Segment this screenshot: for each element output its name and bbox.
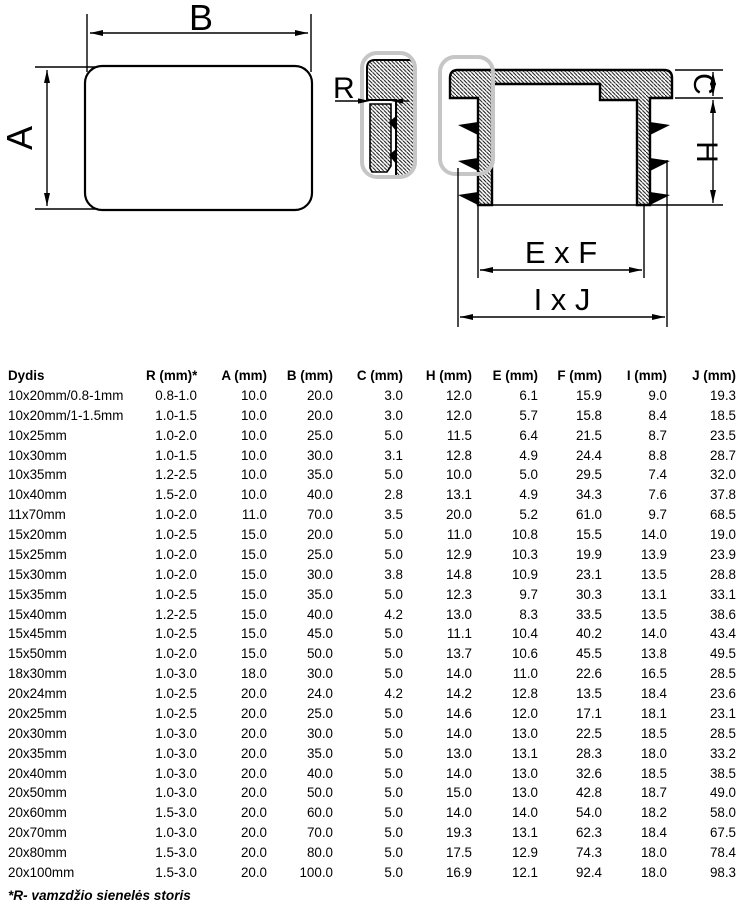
- value-cell: 15.0: [197, 545, 267, 565]
- value-cell: 4.2: [333, 605, 403, 625]
- value-cell: 1.0-2.5: [146, 704, 197, 724]
- value-cell: 20.0: [267, 406, 333, 426]
- value-cell: 4.9: [472, 485, 538, 505]
- fin: [458, 158, 478, 171]
- value-cell: 98.3: [667, 863, 736, 883]
- value-cell: 18.0: [197, 664, 267, 684]
- value-cell: 23.1: [667, 704, 736, 724]
- value-cell: 78.4: [667, 843, 736, 863]
- value-cell: 9.7: [602, 505, 667, 525]
- dim-label-ExF: E x F: [525, 235, 597, 270]
- value-cell: 9.7: [472, 585, 538, 605]
- value-cell: 49.0: [667, 783, 736, 803]
- size-cell: 11x70mm: [8, 505, 146, 525]
- value-cell: 28.7: [667, 446, 736, 466]
- value-cell: 13.9: [602, 545, 667, 565]
- value-cell: 1.0-3.0: [146, 783, 197, 803]
- value-cell: 14.0: [403, 803, 472, 823]
- detail-tube-wall: [370, 104, 391, 172]
- table-row: 18x30mm1.0-3.018.030.05.014.011.022.616.…: [8, 664, 736, 684]
- value-cell: 70.0: [267, 505, 333, 525]
- value-cell: 19.3: [667, 386, 736, 406]
- value-cell: 10.0: [197, 485, 267, 505]
- column-header: R (mm)*: [146, 366, 197, 386]
- value-cell: 18.5: [602, 764, 667, 784]
- value-cell: 15.8: [538, 406, 602, 426]
- value-cell: 5.0: [333, 525, 403, 545]
- technical-drawing: B A R: [0, 0, 741, 360]
- value-cell: 35.0: [267, 744, 333, 764]
- table-row: 15x20mm1.0-2.515.020.05.011.010.815.514.…: [8, 525, 736, 545]
- value-cell: 18.4: [602, 823, 667, 843]
- value-cell: 18.4: [602, 684, 667, 704]
- dim-label-A: A: [0, 126, 40, 150]
- value-cell: 50.0: [267, 783, 333, 803]
- section-cap-body: [450, 70, 672, 205]
- value-cell: 18.7: [602, 783, 667, 803]
- value-cell: 32.6: [538, 764, 602, 784]
- value-cell: 14.0: [403, 664, 472, 684]
- value-cell: 61.0: [538, 505, 602, 525]
- value-cell: 20.0: [267, 386, 333, 406]
- value-cell: 21.5: [538, 426, 602, 446]
- value-cell: 5.0: [333, 863, 403, 883]
- size-cell: 15x25mm: [8, 545, 146, 565]
- column-header: F (mm): [538, 366, 602, 386]
- value-cell: 8.3: [472, 605, 538, 625]
- size-cell: 18x30mm: [8, 664, 146, 684]
- column-header: J (mm): [667, 366, 736, 386]
- value-cell: 1.5-2.0: [146, 485, 197, 505]
- table-row: 10x25mm1.0-2.010.025.05.011.56.421.58.72…: [8, 426, 736, 446]
- value-cell: 19.3: [403, 823, 472, 843]
- value-cell: 13.1: [472, 823, 538, 843]
- column-header: I (mm): [602, 366, 667, 386]
- value-cell: 1.0-2.5: [146, 684, 197, 704]
- value-cell: 13.1: [602, 585, 667, 605]
- value-cell: 28.3: [538, 744, 602, 764]
- value-cell: 1.0-2.5: [146, 525, 197, 545]
- value-cell: 11.0: [472, 664, 538, 684]
- value-cell: 34.3: [538, 485, 602, 505]
- value-cell: 11.0: [197, 505, 267, 525]
- value-cell: 17.5: [403, 843, 472, 863]
- value-cell: 11.5: [403, 426, 472, 446]
- value-cell: 12.0: [403, 386, 472, 406]
- value-cell: 45.0: [267, 624, 333, 644]
- value-cell: 38.5: [667, 764, 736, 784]
- value-cell: 5.0: [333, 426, 403, 446]
- value-cell: 49.5: [667, 644, 736, 664]
- size-cell: 20x30mm: [8, 724, 146, 744]
- table-row: 20x100mm1.5-3.020.0100.05.016.912.192.41…: [8, 863, 736, 883]
- value-cell: 14.8: [403, 565, 472, 585]
- page: { "drawing": { "labels": { "width": "B",…: [0, 0, 741, 917]
- size-cell: 20x60mm: [8, 803, 146, 823]
- value-cell: 67.5: [667, 823, 736, 843]
- value-cell: 14.0: [602, 624, 667, 644]
- value-cell: 35.0: [267, 585, 333, 605]
- value-cell: 10.8: [472, 525, 538, 545]
- value-cell: 8.7: [602, 426, 667, 446]
- value-cell: 1.0-2.0: [146, 426, 197, 446]
- value-cell: 14.0: [403, 764, 472, 784]
- value-cell: 10.3: [472, 545, 538, 565]
- value-cell: 13.0: [403, 744, 472, 764]
- value-cell: 5.0: [333, 744, 403, 764]
- value-cell: 5.0: [333, 585, 403, 605]
- detail-view: R: [333, 53, 430, 180]
- value-cell: 37.8: [667, 485, 736, 505]
- table-row: 11x70mm1.0-2.011.070.03.520.05.261.09.76…: [8, 505, 736, 525]
- column-header: H (mm): [403, 366, 472, 386]
- fin: [458, 192, 478, 205]
- column-header: B (mm): [267, 366, 333, 386]
- value-cell: 20.0: [197, 684, 267, 704]
- value-cell: 17.1: [538, 704, 602, 724]
- size-cell: 20x70mm: [8, 823, 146, 843]
- value-cell: 40.0: [267, 605, 333, 625]
- value-cell: 20.0: [197, 843, 267, 863]
- value-cell: 6.4: [472, 426, 538, 446]
- value-cell: 13.1: [472, 744, 538, 764]
- value-cell: 38.6: [667, 605, 736, 625]
- table-row: 20x50mm1.0-3.020.050.05.015.013.042.818.…: [8, 783, 736, 803]
- value-cell: 10.0: [197, 426, 267, 446]
- value-cell: 10.9: [472, 565, 538, 585]
- table-row: 20x40mm1.0-3.020.040.05.014.013.032.618.…: [8, 764, 736, 784]
- value-cell: 40.0: [267, 764, 333, 784]
- value-cell: 5.0: [333, 724, 403, 744]
- table-row: 20x25mm1.0-2.520.025.05.014.612.017.118.…: [8, 704, 736, 724]
- value-cell: 1.0-2.0: [146, 505, 197, 525]
- value-cell: 40.0: [267, 485, 333, 505]
- value-cell: 20.0: [197, 803, 267, 823]
- value-cell: 62.3: [538, 823, 602, 843]
- value-cell: 1.5-3.0: [146, 863, 197, 883]
- value-cell: 12.0: [472, 704, 538, 724]
- value-cell: 22.6: [538, 664, 602, 684]
- size-cell: 10x30mm: [8, 446, 146, 466]
- value-cell: 6.1: [472, 386, 538, 406]
- value-cell: 1.0-2.5: [146, 585, 197, 605]
- value-cell: 23.1: [538, 565, 602, 585]
- value-cell: 30.0: [267, 664, 333, 684]
- value-cell: 20.0: [267, 525, 333, 545]
- table-row: 20x60mm1.5-3.020.060.05.014.014.054.018.…: [8, 803, 736, 823]
- value-cell: 18.1: [602, 704, 667, 724]
- value-cell: 20.0: [197, 863, 267, 883]
- value-cell: 3.0: [333, 406, 403, 426]
- value-cell: 18.2: [602, 803, 667, 823]
- value-cell: 19.0: [667, 525, 736, 545]
- value-cell: 10.0: [197, 446, 267, 466]
- value-cell: 10.0: [197, 386, 267, 406]
- value-cell: 60.0: [267, 803, 333, 823]
- column-header: A (mm): [197, 366, 267, 386]
- table-row: 15x30mm1.0-2.015.030.03.814.810.923.113.…: [8, 565, 736, 585]
- value-cell: 18.0: [602, 744, 667, 764]
- table-row: 15x40mm1.2-2.515.040.04.213.08.333.513.5…: [8, 605, 736, 625]
- value-cell: 5.0: [472, 465, 538, 485]
- value-cell: 8.4: [602, 406, 667, 426]
- value-cell: 5.0: [333, 644, 403, 664]
- value-cell: 30.0: [267, 446, 333, 466]
- table-header-row: DydisR (mm)*A (mm)B (mm)C (mm)H (mm)E (m…: [8, 366, 736, 386]
- value-cell: 15.0: [197, 644, 267, 664]
- table-row: 10x20mm/1-1.5mm1.0-1.510.020.03.012.05.7…: [8, 406, 736, 426]
- value-cell: 25.0: [267, 704, 333, 724]
- value-cell: 10.6: [472, 644, 538, 664]
- size-cell: 20x100mm: [8, 863, 146, 883]
- value-cell: 14.0: [472, 803, 538, 823]
- dim-label-R: R: [333, 72, 355, 105]
- value-cell: 14.2: [403, 684, 472, 704]
- value-cell: 2.8: [333, 485, 403, 505]
- value-cell: 1.0-3.0: [146, 744, 197, 764]
- size-cell: 10x40mm: [8, 485, 146, 505]
- value-cell: 58.0: [667, 803, 736, 823]
- value-cell: 3.5: [333, 505, 403, 525]
- value-cell: 42.8: [538, 783, 602, 803]
- value-cell: 14.0: [403, 724, 472, 744]
- value-cell: 15.5: [538, 525, 602, 545]
- value-cell: 24.4: [538, 446, 602, 466]
- front-view: B A: [0, 0, 312, 210]
- value-cell: 20.0: [197, 704, 267, 724]
- value-cell: 13.0: [472, 783, 538, 803]
- value-cell: 35.0: [267, 465, 333, 485]
- value-cell: 15.0: [403, 783, 472, 803]
- value-cell: 40.2: [538, 624, 602, 644]
- value-cell: 33.1: [667, 585, 736, 605]
- value-cell: 14.0: [602, 525, 667, 545]
- size-cell: 15x50mm: [8, 644, 146, 664]
- table-row: 20x24mm1.0-2.520.024.04.214.212.813.518.…: [8, 684, 736, 704]
- value-cell: 5.0: [333, 764, 403, 784]
- value-cell: 1.2-2.5: [146, 605, 197, 625]
- value-cell: 15.0: [197, 624, 267, 644]
- value-cell: 3.1: [333, 446, 403, 466]
- size-cell: 20x24mm: [8, 684, 146, 704]
- table-row: 10x20mm/0.8-1mm0.8-1.010.020.03.012.06.1…: [8, 386, 736, 406]
- value-cell: 12.9: [472, 843, 538, 863]
- value-cell: 16.9: [403, 863, 472, 883]
- value-cell: 15.0: [197, 605, 267, 625]
- value-cell: 5.0: [333, 624, 403, 644]
- spec-table: DydisR (mm)*A (mm)B (mm)C (mm)H (mm)E (m…: [8, 366, 736, 883]
- size-cell: 15x40mm: [8, 605, 146, 625]
- table-row: 15x25mm1.0-2.015.025.05.012.910.319.913.…: [8, 545, 736, 565]
- value-cell: 7.4: [602, 465, 667, 485]
- value-cell: 1.0-1.5: [146, 406, 197, 426]
- value-cell: 23.6: [667, 684, 736, 704]
- value-cell: 20.0: [197, 823, 267, 843]
- size-cell: 20x80mm: [8, 843, 146, 863]
- value-cell: 12.1: [472, 863, 538, 883]
- column-header: C (mm): [333, 366, 403, 386]
- value-cell: 18.5: [602, 724, 667, 744]
- value-cell: 28.8: [667, 565, 736, 585]
- value-cell: 45.5: [538, 644, 602, 664]
- value-cell: 5.0: [333, 803, 403, 823]
- value-cell: 12.9: [403, 545, 472, 565]
- value-cell: 24.0: [267, 684, 333, 704]
- value-cell: 15.0: [197, 525, 267, 545]
- value-cell: 1.0-2.0: [146, 545, 197, 565]
- fin: [458, 122, 478, 135]
- value-cell: 1.0-1.5: [146, 446, 197, 466]
- value-cell: 1.5-3.0: [146, 803, 197, 823]
- value-cell: 0.8-1.0: [146, 386, 197, 406]
- value-cell: 30.0: [267, 724, 333, 744]
- table-row: 15x45mm1.0-2.515.045.05.011.110.440.214.…: [8, 624, 736, 644]
- size-cell: 20x35mm: [8, 744, 146, 764]
- value-cell: 33.2: [667, 744, 736, 764]
- value-cell: 10.0: [197, 406, 267, 426]
- value-cell: 5.0: [333, 843, 403, 863]
- value-cell: 4.9: [472, 446, 538, 466]
- dim-label-IxJ: I x J: [534, 282, 591, 317]
- table-row: 10x35mm1.2-2.510.035.05.010.05.029.57.43…: [8, 465, 736, 485]
- value-cell: 13.0: [472, 764, 538, 784]
- value-cell: 74.3: [538, 843, 602, 863]
- dim-label-C: C: [687, 73, 720, 95]
- value-cell: 5.2: [472, 505, 538, 525]
- value-cell: 12.8: [472, 684, 538, 704]
- value-cell: 3.8: [333, 565, 403, 585]
- value-cell: 5.0: [333, 465, 403, 485]
- column-header: E (mm): [472, 366, 538, 386]
- value-cell: 1.0-3.0: [146, 664, 197, 684]
- table-row: 15x50mm1.0-2.015.050.05.013.710.645.513.…: [8, 644, 736, 664]
- value-cell: 10.4: [472, 624, 538, 644]
- size-cell: 15x35mm: [8, 585, 146, 605]
- value-cell: 13.5: [602, 605, 667, 625]
- value-cell: 13.5: [538, 684, 602, 704]
- value-cell: 92.4: [538, 863, 602, 883]
- value-cell: 9.0: [602, 386, 667, 406]
- size-cell: 10x25mm: [8, 426, 146, 446]
- table-row: 20x30mm1.0-3.020.030.05.014.013.022.518.…: [8, 724, 736, 744]
- value-cell: 5.0: [333, 664, 403, 684]
- value-cell: 20.0: [197, 764, 267, 784]
- value-cell: 5.0: [333, 783, 403, 803]
- value-cell: 1.0-3.0: [146, 823, 197, 843]
- table-row: 20x80mm1.5-3.020.080.05.017.512.974.318.…: [8, 843, 736, 863]
- column-header: Dydis: [8, 366, 146, 386]
- value-cell: 1.0-2.0: [146, 644, 197, 664]
- table-row: 20x70mm1.0-3.020.070.05.019.313.162.318.…: [8, 823, 736, 843]
- value-cell: 12.8: [403, 446, 472, 466]
- fin: [650, 122, 670, 135]
- value-cell: 18.0: [602, 863, 667, 883]
- value-cell: 68.5: [667, 505, 736, 525]
- size-cell: 15x20mm: [8, 525, 146, 545]
- value-cell: 11.1: [403, 624, 472, 644]
- value-cell: 13.8: [602, 644, 667, 664]
- value-cell: 13.5: [602, 565, 667, 585]
- value-cell: 15.0: [197, 565, 267, 585]
- table-row: 10x40mm1.5-2.010.040.02.813.14.934.37.63…: [8, 485, 736, 505]
- value-cell: 10.0: [197, 465, 267, 485]
- size-cell: 10x20mm/0.8-1mm: [8, 386, 146, 406]
- value-cell: 5.7: [472, 406, 538, 426]
- value-cell: 11.0: [403, 525, 472, 545]
- size-cell: 10x20mm/1-1.5mm: [8, 406, 146, 426]
- value-cell: 1.0-2.5: [146, 624, 197, 644]
- size-cell: 20x40mm: [8, 764, 146, 784]
- value-cell: 20.0: [197, 744, 267, 764]
- value-cell: 8.8: [602, 446, 667, 466]
- value-cell: 100.0: [267, 863, 333, 883]
- value-cell: 13.0: [403, 605, 472, 625]
- dim-label-H: H: [690, 141, 723, 163]
- value-cell: 80.0: [267, 843, 333, 863]
- size-cell: 15x45mm: [8, 624, 146, 644]
- value-cell: 12.3: [403, 585, 472, 605]
- value-cell: 20.0: [403, 505, 472, 525]
- value-cell: 70.0: [267, 823, 333, 843]
- value-cell: 7.6: [602, 485, 667, 505]
- value-cell: 3.0: [333, 386, 403, 406]
- value-cell: 33.5: [538, 605, 602, 625]
- table-row: 15x35mm1.0-2.515.035.05.012.39.730.313.1…: [8, 585, 736, 605]
- size-cell: 15x30mm: [8, 565, 146, 585]
- value-cell: 22.5: [538, 724, 602, 744]
- value-cell: 43.4: [667, 624, 736, 644]
- value-cell: 32.0: [667, 465, 736, 485]
- value-cell: 23.9: [667, 545, 736, 565]
- value-cell: 30.3: [538, 585, 602, 605]
- table-footnote: *R- vamzdžio sienelės storis: [8, 888, 191, 903]
- value-cell: 1.5-3.0: [146, 843, 197, 863]
- value-cell: 13.0: [472, 724, 538, 744]
- value-cell: 16.5: [602, 664, 667, 684]
- value-cell: 10.0: [403, 465, 472, 485]
- value-cell: 1.0-3.0: [146, 724, 197, 744]
- value-cell: 28.5: [667, 724, 736, 744]
- value-cell: 28.5: [667, 664, 736, 684]
- value-cell: 29.5: [538, 465, 602, 485]
- value-cell: 15.0: [197, 585, 267, 605]
- value-cell: 18.5: [667, 406, 736, 426]
- value-cell: 25.0: [267, 545, 333, 565]
- dim-label-B: B: [189, 0, 213, 38]
- table-row: 20x35mm1.0-3.020.035.05.013.013.128.318.…: [8, 744, 736, 764]
- value-cell: 25.0: [267, 426, 333, 446]
- value-cell: 1.2-2.5: [146, 465, 197, 485]
- value-cell: 50.0: [267, 644, 333, 664]
- value-cell: 5.0: [333, 823, 403, 843]
- cap-face-outline: [85, 66, 312, 210]
- value-cell: 4.2: [333, 684, 403, 704]
- size-cell: 10x35mm: [8, 465, 146, 485]
- value-cell: 30.0: [267, 565, 333, 585]
- value-cell: 13.7: [403, 644, 472, 664]
- value-cell: 23.5: [667, 426, 736, 446]
- value-cell: 20.0: [197, 724, 267, 744]
- cross-section-view: C H E x F I x J: [440, 57, 723, 327]
- value-cell: 15.9: [538, 386, 602, 406]
- value-cell: 18.0: [602, 843, 667, 863]
- value-cell: 14.6: [403, 704, 472, 724]
- size-cell: 20x50mm: [8, 783, 146, 803]
- value-cell: 1.0-3.0: [146, 764, 197, 784]
- value-cell: 5.0: [333, 704, 403, 724]
- value-cell: 54.0: [538, 803, 602, 823]
- size-cell: 20x25mm: [8, 704, 146, 724]
